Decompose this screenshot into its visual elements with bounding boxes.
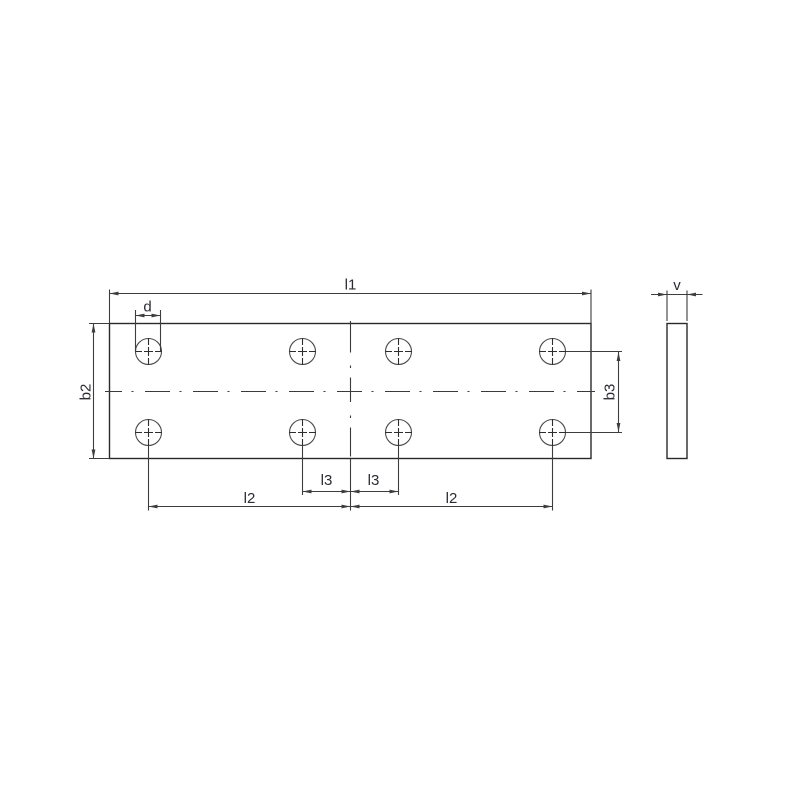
svg-text:b2: b2 <box>78 384 95 401</box>
svg-text:b3: b3 <box>602 384 619 401</box>
svg-text:d: d <box>143 299 151 316</box>
svg-text:l3: l3 <box>368 472 380 489</box>
svg-text:l1: l1 <box>345 277 357 294</box>
svg-text:l2: l2 <box>244 490 256 507</box>
svg-text:l2: l2 <box>446 490 458 507</box>
svg-text:l3: l3 <box>321 472 333 489</box>
svg-text:v: v <box>673 277 681 294</box>
